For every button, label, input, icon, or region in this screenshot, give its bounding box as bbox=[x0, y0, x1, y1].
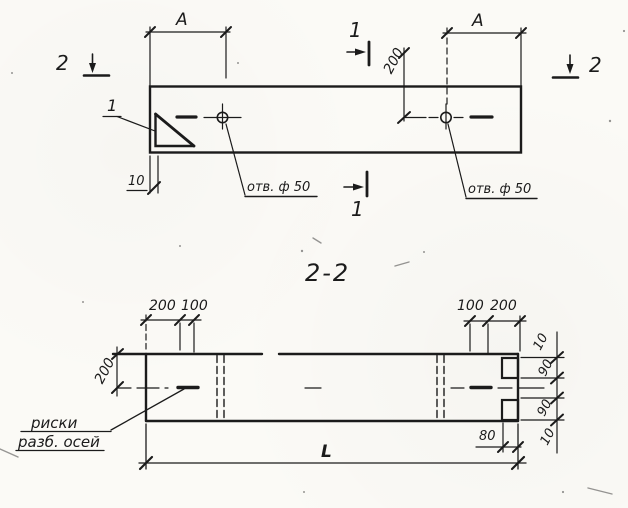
dim-section-left-200-100 bbox=[141, 315, 201, 352]
section-hidden-hole-right bbox=[437, 356, 444, 421]
dim-label-left-100: 100 bbox=[181, 299, 208, 313]
section1-cut-marker-top bbox=[347, 42, 369, 65]
drawing-linework bbox=[0, 0, 628, 508]
section2-label-right: 2 bbox=[589, 55, 602, 75]
hole-left bbox=[177, 104, 241, 129]
dim-label-right-200: 200 bbox=[490, 299, 517, 313]
chamfer-detail-leader bbox=[103, 117, 155, 132]
section-title: 2-2 bbox=[305, 261, 350, 285]
hole-label-left: отв. ф 50 bbox=[247, 181, 310, 194]
section1-cut-marker-bottom bbox=[344, 172, 367, 196]
section-hidden-hole-left bbox=[217, 356, 224, 421]
section1-label-top: 1 bbox=[349, 20, 362, 40]
dim-label-length-L: L bbox=[321, 444, 332, 461]
top-view-beam-outline bbox=[150, 87, 521, 153]
dim-length-L bbox=[139, 424, 526, 469]
section-centerline bbox=[117, 388, 544, 389]
section2-cut-marker-right bbox=[553, 55, 578, 78]
hole-label-right: отв. ф 50 bbox=[468, 183, 531, 196]
drawing-sheet: A A 1 1 2 2 200 1 отв. ф 50 отв. ф 50 10… bbox=[0, 0, 628, 508]
section2-label-left: 2 bbox=[56, 53, 69, 73]
dim-label-left-200: 200 bbox=[149, 299, 176, 313]
dim-span-a-right bbox=[442, 28, 526, 104]
section-notch-top bbox=[502, 358, 518, 378]
dim-span-a-left bbox=[145, 27, 231, 86]
span-label-a-right: A bbox=[472, 13, 484, 30]
dim-label-right-100: 100 bbox=[457, 299, 484, 313]
chamfer-detail-label: 1 bbox=[107, 98, 117, 114]
dim-label-notch-80: 80 bbox=[479, 430, 496, 443]
section2-cut-marker-left bbox=[84, 54, 109, 76]
section-notch-bottom bbox=[502, 400, 518, 420]
dim-label-chamfer-10: 10 bbox=[128, 175, 145, 188]
span-label-a-left: A bbox=[176, 12, 188, 29]
axis-marks-label-line2: разб. осей bbox=[18, 435, 100, 450]
axis-marks-label-line1: риски bbox=[31, 416, 77, 431]
dim-section-right-100-200 bbox=[464, 316, 526, 353]
section1-label-bottom: 1 bbox=[351, 199, 364, 219]
chamfer-detail bbox=[156, 114, 195, 146]
